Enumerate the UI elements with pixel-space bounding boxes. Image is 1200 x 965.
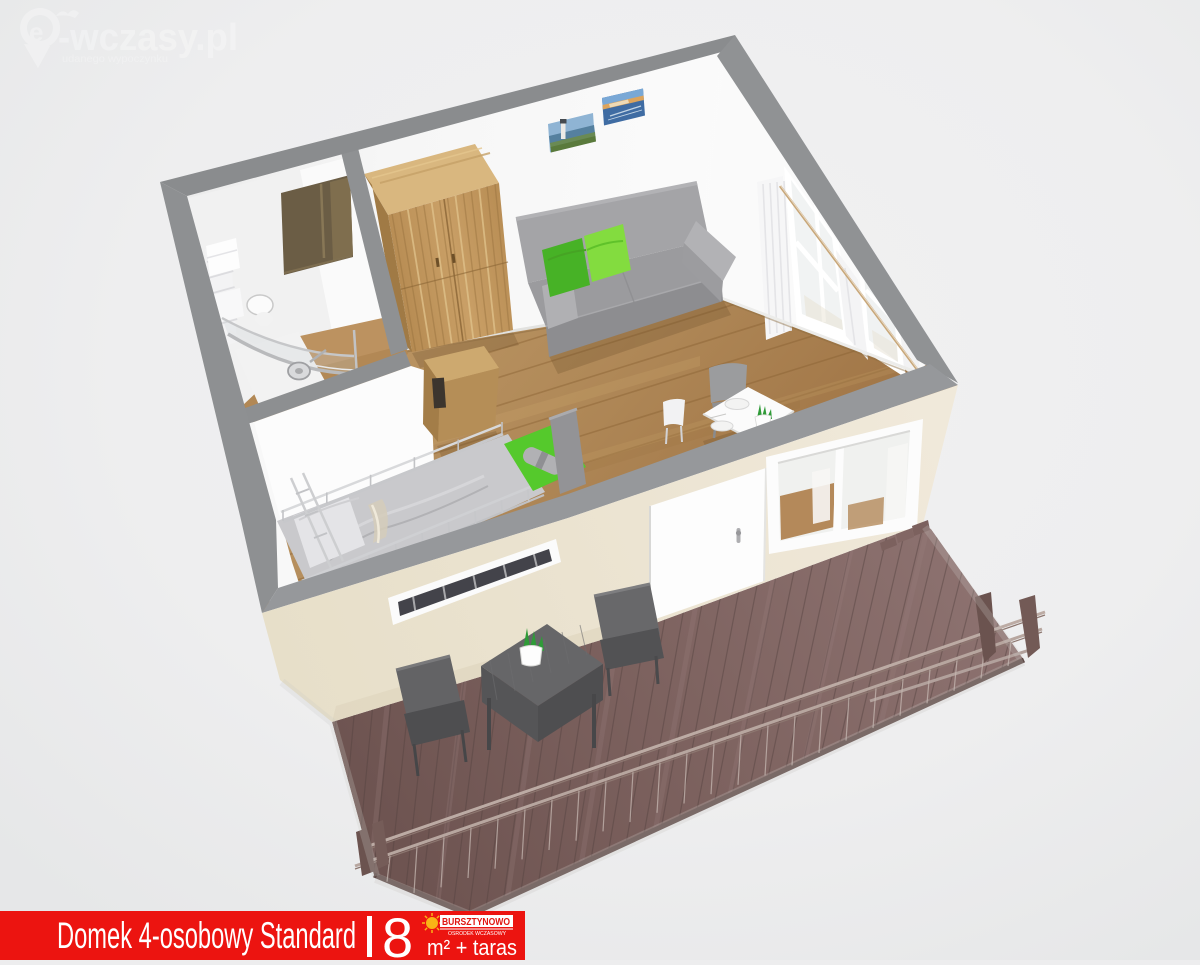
svg-text:udanego wypoczynku: udanego wypoczynku [62, 53, 168, 65]
svg-text:8: 8 [382, 906, 413, 960]
svg-text:OSRODEK WCZASOWY: OSRODEK WCZASOWY [448, 931, 506, 937]
svg-text:e: e [29, 17, 43, 47]
svg-text:m² + taras: m² + taras [427, 935, 517, 960]
svg-text:Domek 4-osobowy Standard: Domek 4-osobowy Standard [57, 915, 356, 956]
svg-text:BURSZTYNOWO: BURSZTYNOWO [442, 917, 510, 928]
